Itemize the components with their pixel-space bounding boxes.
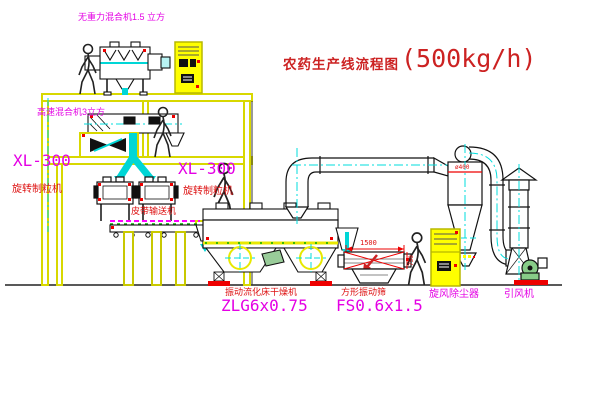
dim-screen-width: 1500 bbox=[360, 240, 377, 247]
label-granulator-left-name: 旋转制粒机 bbox=[12, 185, 62, 195]
label-mid-mixer: 高速混合机3立方 bbox=[37, 108, 105, 117]
label-granulator-right-model: XL-300 bbox=[178, 161, 236, 177]
flow-diagram-canvas: 农药生产线流程图 (500kg/h) 无重力混合机1.5 立方 高速混合机3立方… bbox=[0, 0, 600, 403]
granulator-left bbox=[94, 177, 136, 221]
title-capacity: (500kg/h) bbox=[401, 44, 536, 73]
label-granulator-right-name: 旋转制粒机 bbox=[183, 187, 233, 197]
label-dryer-model: ZLG6x0.75 bbox=[221, 298, 308, 314]
top-mixer bbox=[85, 42, 170, 95]
fluid-bed-dryer bbox=[203, 203, 338, 286]
label-belt-conveyor: 皮带输送机 bbox=[131, 207, 176, 216]
label-screen-model: FS0.6x1.5 bbox=[336, 298, 423, 314]
control-cabinet-top bbox=[175, 42, 202, 93]
control-cabinet-right bbox=[431, 229, 460, 286]
diagram-title: 农药生产线流程图 (500kg/h) bbox=[283, 44, 536, 73]
label-granulator-left-model: XL-300 bbox=[13, 153, 71, 169]
label-fan: 引风机 bbox=[504, 290, 534, 300]
belt-conveyor bbox=[110, 221, 214, 285]
label-top-mixer: 无重力混合机1.5 立方 bbox=[78, 13, 165, 22]
dim-cyclone-diameter: ø400 bbox=[455, 165, 469, 171]
dim-screen-height: 750 bbox=[409, 255, 415, 266]
title-text: 农药生产线流程图 bbox=[283, 53, 399, 73]
label-cyclone: 旋风除尘器 bbox=[429, 290, 479, 300]
